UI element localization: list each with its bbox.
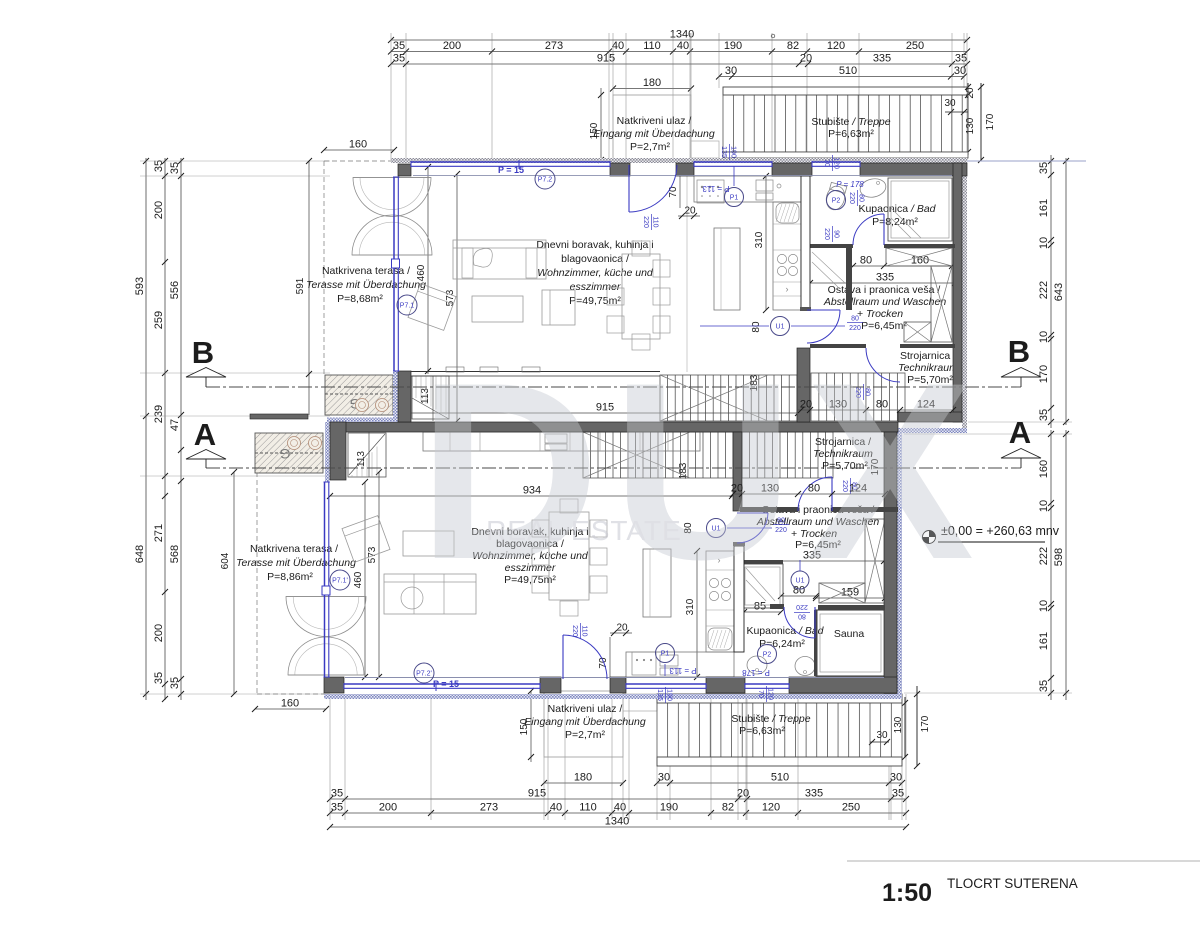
svg-text:604: 604 — [220, 552, 231, 569]
svg-text:35: 35 — [955, 53, 967, 65]
svg-text:P7.2': P7.2' — [416, 670, 432, 677]
svg-text:A: A — [1009, 415, 1031, 450]
svg-text:35: 35 — [153, 160, 165, 172]
svg-text:P7.1: P7.1 — [400, 302, 415, 309]
svg-text:10: 10 — [1038, 331, 1050, 343]
svg-text:35: 35 — [892, 788, 904, 800]
svg-text:TLOCRT SUTERENA: TLOCRT SUTERENA — [947, 876, 1078, 891]
svg-text:B: B — [1008, 334, 1030, 369]
svg-text:P = 15: P = 15 — [433, 679, 459, 689]
svg-text:220: 220 — [642, 216, 649, 228]
svg-text:80: 80 — [798, 613, 806, 620]
svg-text:P2: P2 — [763, 651, 772, 658]
svg-text:30: 30 — [944, 98, 956, 109]
svg-text:200: 200 — [379, 802, 397, 814]
svg-text:170: 170 — [920, 715, 931, 732]
svg-text:P=2,7m²: P=2,7m² — [565, 729, 605, 741]
svg-text:335: 335 — [873, 53, 891, 65]
svg-text:170: 170 — [985, 113, 996, 130]
svg-text:30: 30 — [658, 772, 670, 784]
svg-text:460: 460 — [353, 571, 364, 588]
svg-text:80: 80 — [851, 316, 859, 323]
svg-text:80: 80 — [860, 255, 872, 267]
svg-text:REAL ESTATE: REAL ESTATE — [486, 515, 682, 546]
svg-text:135: 135 — [720, 146, 727, 158]
svg-text:10: 10 — [1038, 500, 1050, 512]
svg-text:P=8,68m²: P=8,68m² — [337, 293, 383, 305]
svg-text:120: 120 — [833, 157, 840, 169]
svg-text:135: 135 — [656, 689, 663, 701]
svg-text:120: 120 — [827, 40, 845, 52]
svg-text:Sauna: Sauna — [834, 628, 865, 640]
svg-text:P = 15: P = 15 — [498, 165, 524, 175]
svg-text:30: 30 — [890, 772, 902, 784]
svg-text:Stubište / Treppe: Stubište / Treppe — [731, 713, 810, 725]
svg-text:180: 180 — [643, 77, 661, 89]
svg-text:161: 161 — [1038, 199, 1050, 217]
svg-text:30: 30 — [954, 65, 966, 77]
svg-text:Stubište / Treppe: Stubište / Treppe — [811, 116, 890, 128]
svg-text:82: 82 — [787, 40, 799, 52]
svg-text:250: 250 — [906, 40, 924, 52]
svg-text:70: 70 — [757, 690, 764, 698]
svg-text:P=6,63m²: P=6,63m² — [828, 128, 874, 140]
svg-text:Abstellraum und Waschen: Abstellraum und Waschen — [823, 296, 947, 308]
svg-text:568: 568 — [169, 545, 181, 563]
svg-text:35: 35 — [1038, 162, 1050, 174]
svg-text:190: 190 — [724, 40, 742, 52]
svg-text:70: 70 — [668, 186, 679, 198]
svg-text:Ostava i praonica veša /: Ostava i praonica veša / — [828, 284, 941, 296]
svg-text:643: 643 — [1053, 283, 1065, 301]
svg-text:160: 160 — [911, 255, 929, 267]
svg-text:35: 35 — [331, 788, 343, 800]
svg-text:82: 82 — [722, 802, 734, 814]
svg-text:P7.2: P7.2 — [538, 176, 553, 183]
svg-text:10: 10 — [1038, 237, 1050, 249]
svg-text:P=6,24m²: P=6,24m² — [759, 638, 805, 650]
svg-text:10: 10 — [1038, 600, 1050, 612]
svg-text:P1: P1 — [730, 194, 739, 201]
svg-text:30: 30 — [876, 730, 888, 741]
svg-text:A: A — [194, 417, 216, 452]
svg-text:70: 70 — [823, 159, 830, 167]
svg-text:90: 90 — [833, 230, 840, 238]
svg-text:110: 110 — [581, 625, 588, 636]
svg-text:160: 160 — [1038, 460, 1050, 478]
svg-text:200: 200 — [443, 40, 461, 52]
svg-text:P = 178: P = 178 — [742, 668, 770, 677]
svg-text:239: 239 — [153, 405, 165, 423]
svg-text:190: 190 — [730, 146, 737, 158]
svg-text:510: 510 — [839, 65, 857, 77]
svg-text:40: 40 — [612, 40, 624, 52]
svg-text:190: 190 — [666, 689, 673, 701]
svg-text:Terasse mit Überdachung: Terasse mit Überdachung — [306, 279, 426, 291]
svg-text:310: 310 — [754, 231, 765, 248]
svg-text:648: 648 — [134, 545, 146, 563]
svg-text:blagovaonica /: blagovaonica / — [561, 253, 629, 265]
svg-text:200: 200 — [153, 624, 165, 642]
svg-text:591: 591 — [295, 277, 306, 294]
svg-text:40: 40 — [677, 40, 689, 52]
svg-text:110: 110 — [579, 802, 597, 814]
svg-text:1340: 1340 — [605, 816, 629, 828]
svg-text:113: 113 — [356, 451, 367, 467]
svg-text:Wohnzimmer, küche und: Wohnzimmer, küche und — [537, 267, 654, 279]
svg-text:Eingang mit Überdachung: Eingang mit Überdachung — [524, 716, 646, 728]
svg-text:P7.1': P7.1' — [332, 577, 348, 584]
svg-text:40: 40 — [550, 802, 562, 814]
svg-text:P = 113: P = 113 — [669, 666, 697, 675]
svg-text:190: 190 — [660, 802, 678, 814]
svg-text:esszimmer: esszimmer — [570, 281, 621, 293]
svg-text:20: 20 — [737, 788, 749, 800]
svg-text:222: 222 — [1038, 281, 1050, 299]
svg-text:200: 200 — [153, 201, 165, 219]
svg-text:598: 598 — [1053, 548, 1065, 566]
svg-text:Kupaonica / Bad: Kupaonica / Bad — [746, 625, 824, 637]
svg-text:P1: P1 — [661, 650, 670, 657]
svg-text:P = 113: P = 113 — [702, 184, 730, 193]
svg-text:250: 250 — [842, 802, 860, 814]
svg-text:273: 273 — [480, 802, 498, 814]
svg-text:573: 573 — [445, 289, 456, 306]
svg-text:220: 220 — [571, 625, 578, 637]
svg-text:20: 20 — [965, 87, 976, 99]
svg-text:Eingang mit Überdachung: Eingang mit Überdachung — [593, 128, 715, 140]
svg-text:80: 80 — [858, 194, 865, 202]
svg-text:35: 35 — [169, 162, 181, 174]
svg-text:P=8,86m²: P=8,86m² — [267, 571, 313, 583]
svg-text:161: 161 — [1038, 632, 1050, 650]
svg-text:120: 120 — [767, 688, 774, 700]
svg-text:160: 160 — [281, 698, 299, 710]
svg-text:35: 35 — [1038, 680, 1050, 692]
svg-text:70: 70 — [598, 657, 609, 669]
svg-text:P2: P2 — [832, 197, 841, 204]
svg-text:G: G — [280, 446, 291, 462]
svg-text:271: 271 — [153, 524, 165, 542]
svg-text:47: 47 — [169, 419, 181, 431]
svg-text:170: 170 — [1038, 365, 1050, 383]
svg-text:20: 20 — [800, 53, 812, 65]
svg-text:35: 35 — [393, 53, 405, 65]
svg-text:+ Trocken: + Trocken — [857, 308, 903, 320]
svg-text:P = 178: P = 178 — [836, 180, 864, 189]
svg-text:40: 40 — [614, 802, 626, 814]
svg-text:35: 35 — [153, 672, 165, 684]
svg-text:222: 222 — [1038, 547, 1050, 565]
svg-text:510: 510 — [771, 772, 789, 784]
svg-text:U1: U1 — [776, 323, 785, 330]
svg-text:1340: 1340 — [670, 29, 694, 41]
svg-text:160: 160 — [349, 139, 367, 151]
svg-text:35: 35 — [169, 677, 181, 689]
svg-text:›: › — [786, 284, 789, 294]
svg-text:Natkriveni ulaz /: Natkriveni ulaz / — [617, 115, 692, 127]
svg-text:P=6,63m²: P=6,63m² — [739, 725, 785, 737]
svg-text:220: 220 — [848, 192, 855, 204]
svg-text:915: 915 — [528, 788, 546, 800]
svg-text:120: 120 — [762, 802, 780, 814]
svg-text:110: 110 — [652, 216, 659, 227]
svg-text:35: 35 — [393, 40, 405, 52]
svg-text:180: 180 — [574, 772, 592, 784]
svg-text:30: 30 — [725, 65, 737, 77]
svg-text:556: 556 — [169, 281, 181, 299]
svg-text:DUX: DUX — [418, 331, 986, 612]
svg-text:20: 20 — [616, 623, 628, 634]
svg-text:335: 335 — [805, 788, 823, 800]
svg-text:110: 110 — [643, 40, 661, 52]
svg-text:Natkriveni ulaz /: Natkriveni ulaz / — [548, 703, 623, 715]
svg-text:35: 35 — [1038, 409, 1050, 421]
svg-text:B: B — [192, 335, 214, 370]
svg-text:P=2,7m²: P=2,7m² — [630, 141, 670, 153]
svg-text:259: 259 — [153, 311, 165, 329]
svg-text:1:50: 1:50 — [882, 879, 932, 907]
svg-text:915: 915 — [597, 53, 615, 65]
svg-text:335: 335 — [876, 272, 894, 284]
svg-text:273: 273 — [545, 40, 563, 52]
svg-text:20: 20 — [684, 206, 696, 217]
svg-text:Kupaonica / Bad: Kupaonica / Bad — [858, 203, 936, 215]
svg-text:593: 593 — [134, 277, 146, 295]
svg-text:Terasse mit Überdachung: Terasse mit Überdachung — [236, 557, 356, 569]
svg-text:130: 130 — [965, 117, 976, 134]
svg-text:35: 35 — [331, 802, 343, 814]
svg-text:220: 220 — [823, 228, 830, 240]
